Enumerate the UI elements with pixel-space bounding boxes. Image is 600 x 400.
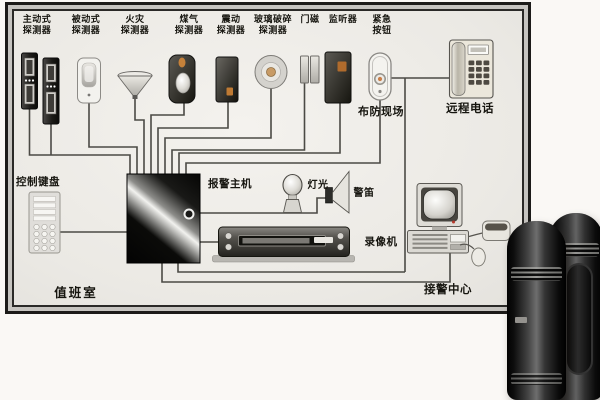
label-vcr: 录像机 [361, 237, 401, 248]
label-light: 灯光 [305, 180, 331, 191]
label-listener: 监听器 [324, 15, 362, 26]
security-system-diagram: 主动式探测器 被动式探测器 火灾探测器 煤气探测器 震动探测器 玻璃破碎探测器 … [0, 0, 600, 400]
label-emergency-button: 紧急按钮 [361, 15, 403, 37]
label-glass-break-detector: 玻璃破碎探测器 [245, 15, 301, 37]
label-armed-site: 布防现场 [354, 106, 408, 117]
diagram-canvas [12, 9, 524, 307]
label-fire-detector: 火灾探测器 [108, 15, 162, 37]
label-active-detector: 主动式探测器 [10, 15, 64, 37]
label-control-keypad: 控制键盘 [12, 177, 64, 188]
tower-grooves [511, 267, 562, 281]
tower-label-sticker [515, 317, 527, 323]
tower-beam-window [565, 263, 593, 375]
label-duty-room: 值班室 [52, 287, 100, 298]
label-door-magnet: 门磁 [295, 15, 325, 26]
label-alarm-host: 报警主机 [204, 179, 256, 190]
label-alarm-center: 接警中心 [418, 284, 478, 295]
label-passive-detector: 被动式探测器 [59, 15, 113, 37]
tower-grooves [511, 373, 562, 385]
ir-beam-tower-photo-left [507, 221, 566, 400]
diagram-frame [5, 2, 531, 314]
label-siren: 警笛 [351, 188, 377, 199]
label-remote-phone: 远程电话 [438, 103, 502, 114]
